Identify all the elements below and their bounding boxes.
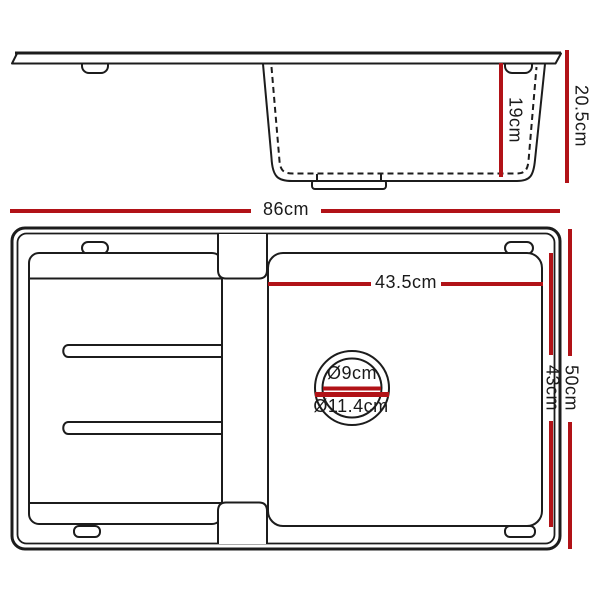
drain-outer-diameter-label: Ø11.4cm xyxy=(313,396,388,416)
counter-profile xyxy=(12,54,561,64)
diagram-canvas: 19cm 20.5cm 86cm xyxy=(0,0,600,600)
divider-cap-top xyxy=(218,234,267,279)
drainboard-panel xyxy=(29,253,222,524)
mounting-tab-bottom-left xyxy=(74,526,100,537)
mounting-tab-bottom-right xyxy=(505,526,535,537)
side-view: 19cm 20.5cm xyxy=(12,50,591,189)
bowl-basin xyxy=(268,253,542,526)
bowl-length-label: 43cm xyxy=(542,365,562,411)
bowl-width-label: 43.5cm xyxy=(375,272,437,292)
divider-cap-bottom xyxy=(218,503,267,545)
overall-length-label: 50cm xyxy=(561,365,581,411)
bowl-depth-label: 19cm xyxy=(505,97,525,143)
sink-dimension-diagram: 19cm 20.5cm 86cm xyxy=(0,0,600,600)
overall-width-dimension: 86cm xyxy=(10,199,560,219)
top-view: 43.5cm Ø9cm Ø11.4cm 43cm 50cm xyxy=(12,228,581,549)
overall-width-label: 86cm xyxy=(263,199,309,219)
drain-inner-diameter-label: Ø9cm xyxy=(327,363,377,383)
overall-depth-label: 20.5cm xyxy=(571,85,591,147)
